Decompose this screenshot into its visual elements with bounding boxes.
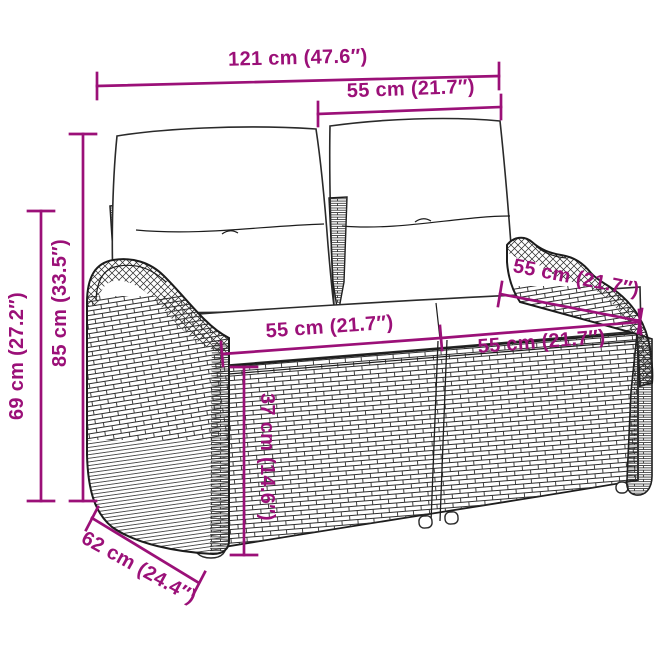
dim-total-width-label: 121 cm (47.6″) — [228, 45, 368, 70]
dim-total-height-label: 85 cm (33.5″) — [49, 239, 71, 367]
foot — [419, 516, 433, 529]
dim-armrest-height-label: 69 cm (27.2″) — [6, 292, 28, 420]
dim-armrest-height: 69 cm (27.2″) — [6, 211, 54, 501]
back-cushion-right — [330, 119, 517, 310]
foot — [445, 512, 459, 525]
product-dimension-image: 121 cm (47.6″) 55 cm (21.7″) 85 cm (33.5… — [0, 0, 666, 666]
dimension-diagram-canvas: 121 cm (47.6″) 55 cm (21.7″) 85 cm (33.5… — [0, 0, 666, 666]
dim-seat-height-label: 37 cm (14.6″) — [256, 393, 278, 521]
dim-back-cushion-width-label: 55 cm (21.7″) — [346, 76, 475, 102]
